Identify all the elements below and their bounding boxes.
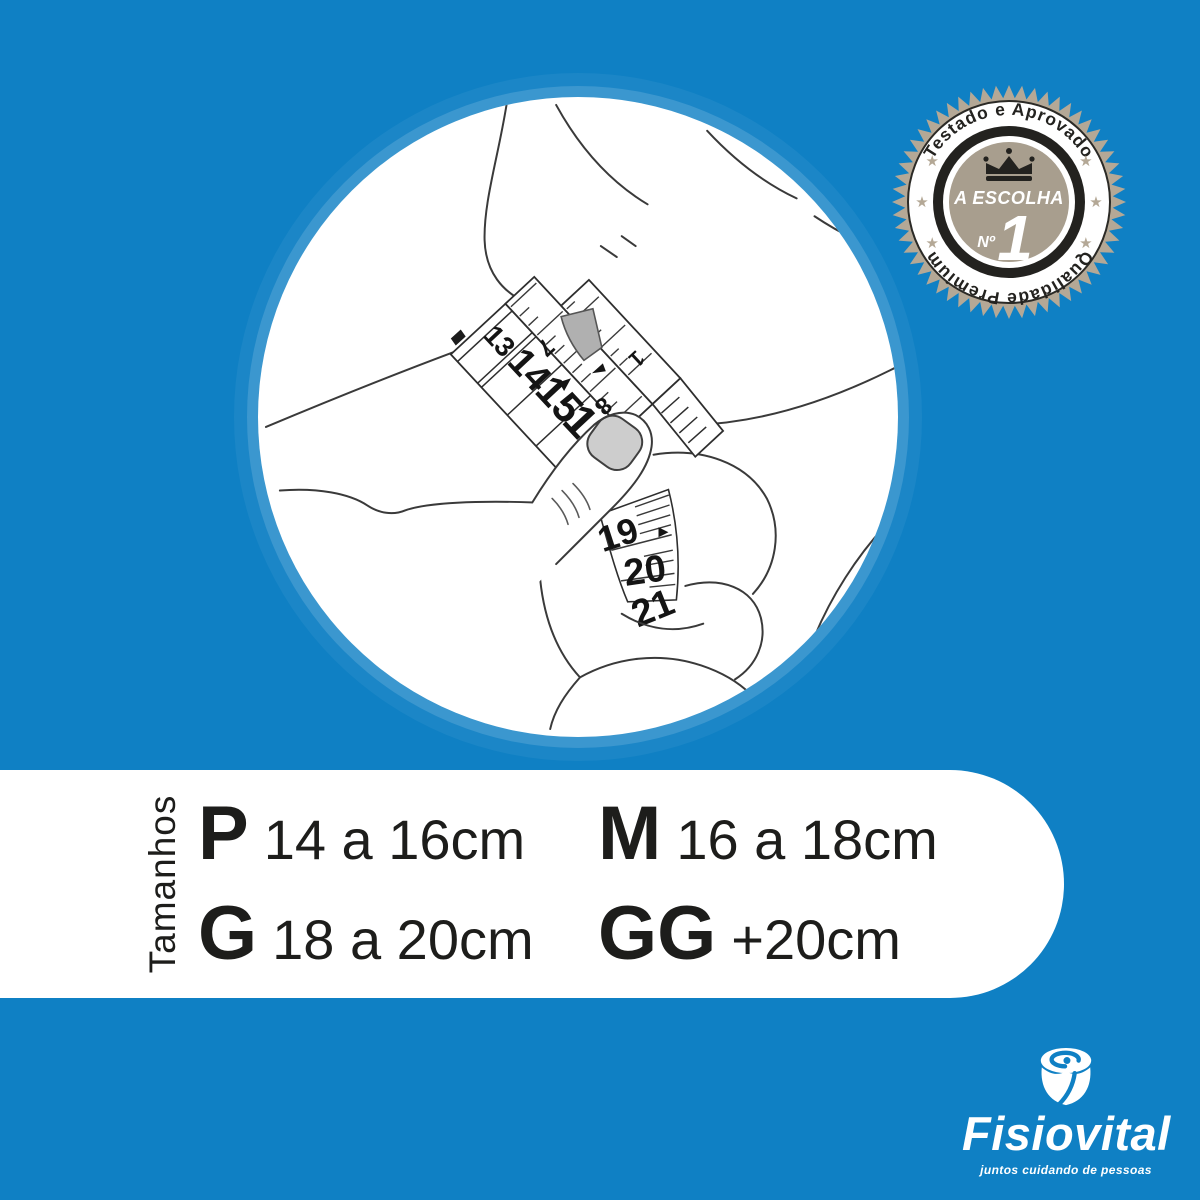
brand-logo: Fisiovital juntos cuidando de pessoas: [962, 1046, 1170, 1177]
quality-badge: Testado e Aprovado Qualidade Premium ★★★…: [889, 80, 1129, 324]
badge-rank-number: 1: [997, 202, 1033, 274]
size-range: 16 a 18cm: [676, 812, 938, 868]
star-icon: ★: [925, 153, 938, 170]
star-icon: ★: [1079, 235, 1092, 252]
product-image: 19 20 21: [0, 0, 1200, 1200]
size-code: P: [198, 796, 249, 872]
size-item-gg: GG +20cm: [598, 896, 901, 972]
star-icon: ★: [1079, 153, 1092, 170]
size-range: 14 a 16cm: [264, 812, 526, 868]
wrist-measuring-illustration: 19 20 21: [258, 97, 898, 737]
rose-icon: [1034, 1046, 1098, 1108]
size-item-m: M 16 a 18cm: [598, 796, 938, 872]
badge-ordinal: Nº: [977, 234, 996, 251]
star-icon: ★: [925, 235, 938, 252]
wrist-measuring-drawing: 19 20 21: [258, 97, 898, 737]
size-code: G: [198, 896, 257, 972]
brand-tagline: juntos cuidando de pessoas: [962, 1163, 1170, 1177]
size-item-p: P 14 a 16cm: [198, 796, 525, 872]
star-icon: ★: [1089, 194, 1102, 211]
size-range: 18 a 20cm: [272, 912, 534, 968]
size-item-g: G 18 a 20cm: [198, 896, 534, 972]
brand-name: Fisiovital: [962, 1108, 1170, 1160]
size-range: +20cm: [731, 912, 901, 968]
star-icon: ★: [915, 194, 928, 211]
size-code: GG: [598, 896, 716, 972]
size-code: M: [598, 796, 661, 872]
size-panel-label: Tamanhos: [142, 795, 184, 974]
